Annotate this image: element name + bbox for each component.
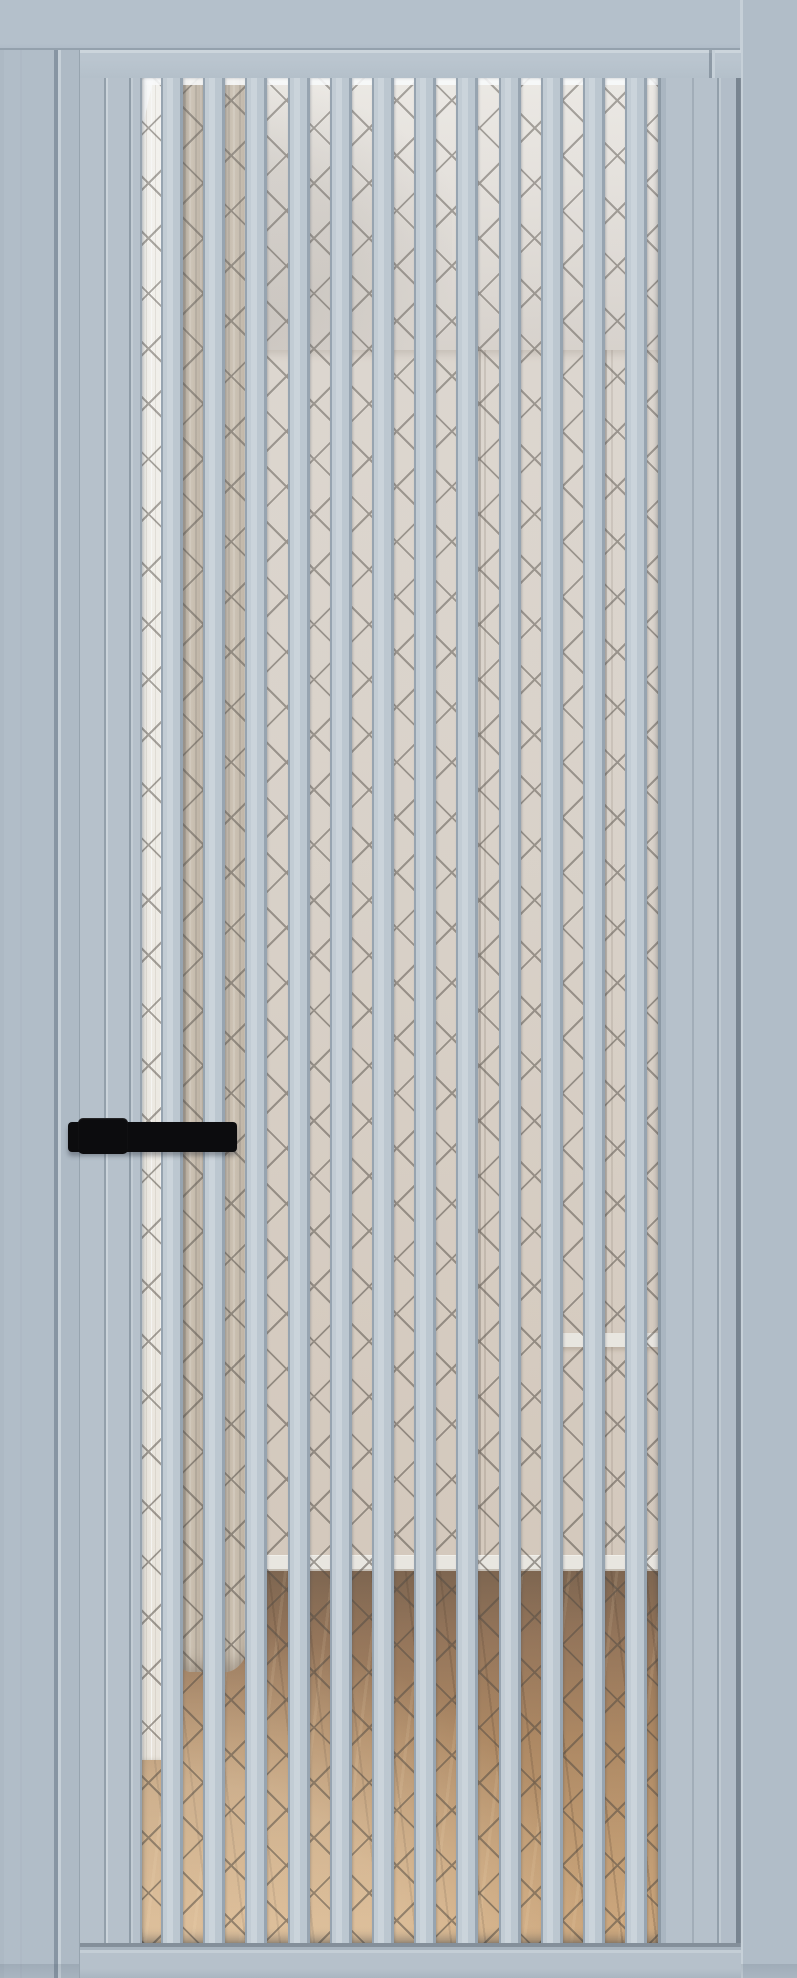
glass-slat: [625, 78, 647, 1943]
glass-slat: [161, 78, 183, 1943]
door-frame-right-jamb: [740, 0, 797, 1978]
glass-slat: [203, 78, 225, 1943]
glass-slat: [245, 78, 267, 1943]
door-leaf: [79, 50, 740, 1978]
door-right-stile: [658, 78, 741, 1943]
glass-slat: [583, 78, 605, 1943]
door-product-photo: Product render of an interior glass door…: [0, 0, 797, 1978]
glass-slat: [541, 78, 563, 1943]
door-frame-left-jamb: [0, 0, 79, 1978]
frame-foot-shadow-right: [740, 1964, 797, 1978]
glass-slat: [288, 78, 310, 1943]
glass-slat: [499, 78, 521, 1943]
glass-slat: [330, 78, 352, 1943]
glass-slat: [414, 78, 436, 1943]
door-frame-head: [0, 0, 797, 50]
door-bottom-rail: [80, 1943, 741, 1978]
frame-foot-shadow-left: [0, 1964, 79, 1978]
lamella-slat-row: [142, 78, 658, 1943]
glass-slat: [372, 78, 394, 1943]
door-top-rail: [80, 50, 741, 78]
glass-slat: [456, 78, 478, 1943]
door-left-stile: [80, 78, 142, 1943]
glass-panel: [142, 78, 658, 1943]
door-handle-plate: [78, 1118, 128, 1154]
